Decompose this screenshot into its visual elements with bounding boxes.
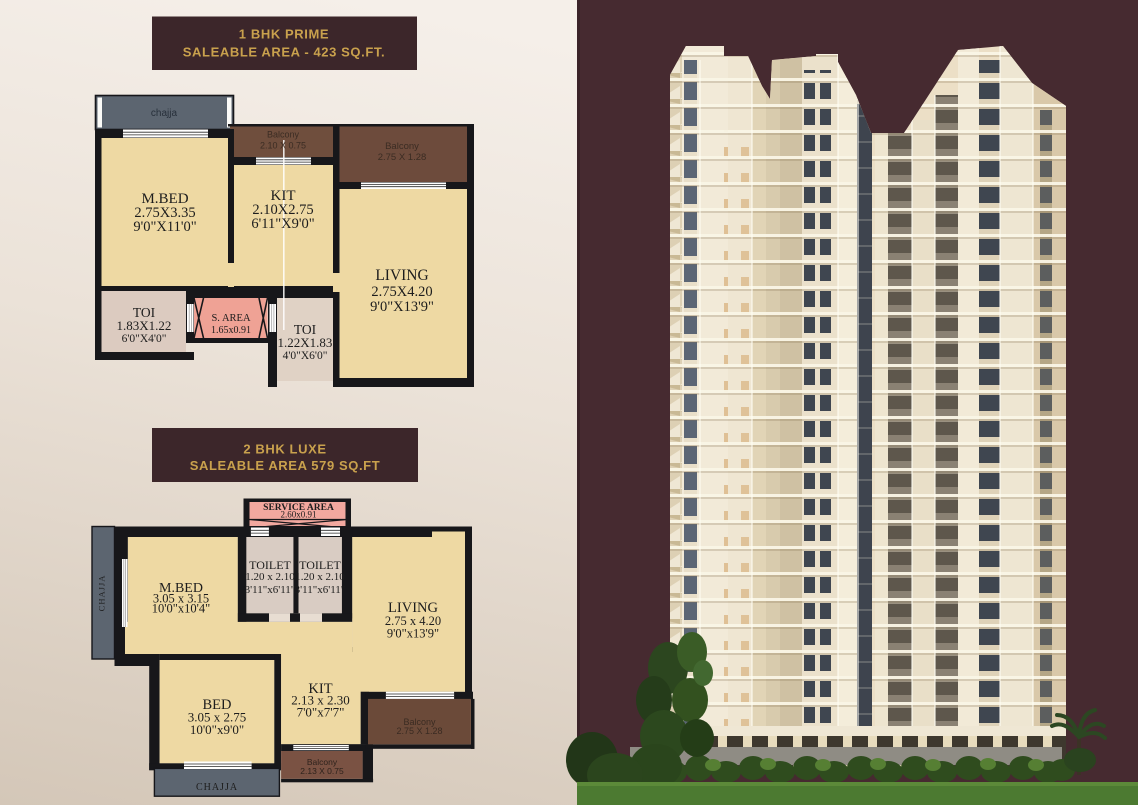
svg-text:9'0"X11'0": 9'0"X11'0" [133,219,196,235]
svg-text:1.20 x 2.10: 1.20 x 2.10 [245,571,295,583]
svg-text:6'11"X9'0": 6'11"X9'0" [251,216,314,232]
svg-text:SALEABLE AREA 579 SQ.FT: SALEABLE AREA 579 SQ.FT [190,458,381,473]
svg-text:10'0"x10'4": 10'0"x10'4" [152,602,210,616]
svg-text:Balcony: Balcony [267,130,300,140]
svg-text:TOILET: TOILET [299,558,341,572]
svg-text:TOILET: TOILET [249,558,291,572]
svg-text:6'0"X4'0": 6'0"X4'0" [122,333,167,345]
svg-text:SALEABLE AREA - 423 SQ.FT.: SALEABLE AREA - 423 SQ.FT. [183,45,385,60]
svg-text:9'0"X13'9": 9'0"X13'9" [370,299,434,315]
svg-text:2.10 X 0.75: 2.10 X 0.75 [260,141,306,151]
svg-text:1.83X1.22: 1.83X1.22 [117,318,172,333]
svg-text:10'0"x9'0": 10'0"x9'0" [190,722,244,737]
svg-text:3'11"x6'11": 3'11"x6'11" [245,584,296,596]
svg-text:2 BHK LUXE: 2 BHK LUXE [243,442,326,457]
svg-text:3'11"x6'11": 3'11"x6'11" [295,584,346,596]
svg-text:1 BHK PRIME: 1 BHK PRIME [239,27,329,42]
svg-text:1.20 x 2.10: 1.20 x 2.10 [295,571,345,583]
svg-text:2.75X4.20: 2.75X4.20 [371,284,432,300]
svg-text:2.75 X 1.28: 2.75 X 1.28 [396,726,442,736]
svg-text:1.22X1.83: 1.22X1.83 [278,335,333,350]
svg-text:2.75 X 1.28: 2.75 X 1.28 [378,152,427,163]
svg-text:1.65x0.91: 1.65x0.91 [211,325,251,336]
svg-text:chajja: chajja [151,108,178,119]
svg-text:9'0"x13'9": 9'0"x13'9" [387,627,439,641]
svg-text:CHAJJA: CHAJJA [196,782,238,793]
svg-text:2.60x0.91: 2.60x0.91 [281,510,317,520]
svg-text:4'0"X6'0": 4'0"X6'0" [283,350,328,362]
svg-text:S. AREA: S. AREA [211,313,251,324]
svg-text:CHAJJA: CHAJJA [97,575,107,612]
svg-text:LIVING: LIVING [375,267,428,284]
svg-text:2.13 X 0.75: 2.13 X 0.75 [300,766,344,776]
svg-text:Balcony: Balcony [385,141,419,152]
svg-text:7'0"x7'7": 7'0"x7'7" [297,705,345,720]
